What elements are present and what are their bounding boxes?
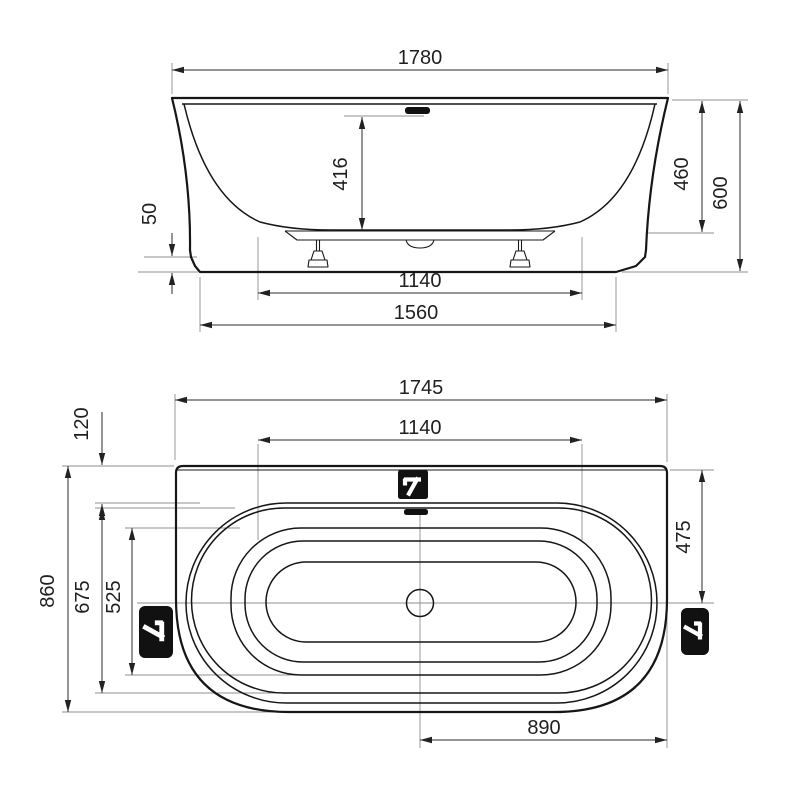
dim-front-basin-depth: 416 <box>330 117 362 230</box>
plan-basin-floor <box>266 562 576 642</box>
dim-front-skirt-width: 1560 <box>200 302 616 325</box>
dim-label: 1140 <box>398 270 441 292</box>
dim-plan-outer-rim-depth: 675 <box>72 508 102 693</box>
bathtub-drawing-svg: 1780 416 460 600 50 1140 1560 <box>0 0 800 800</box>
foot-collar <box>311 251 325 260</box>
front-tub-outline <box>172 98 668 272</box>
dim-label: 416 <box>330 157 352 190</box>
dim-plan-drain-to-edge: 890 <box>420 717 667 740</box>
plan-extension-lines <box>62 394 714 748</box>
dim-plan-basin-width: 525 <box>103 528 132 675</box>
dim-label: 460 <box>671 157 693 190</box>
foot-base <box>308 260 328 267</box>
technical-drawing: 1780 416 460 600 50 1140 1560 <box>0 0 800 800</box>
front-overflow-icon <box>405 107 430 114</box>
dim-label: 890 <box>527 717 560 739</box>
faucet-icon-right <box>681 608 709 655</box>
dim-plan-deck-depth: 120 <box>71 407 102 521</box>
dim-label: 475 <box>673 520 695 553</box>
dim-front-overall-height: 600 <box>710 101 740 271</box>
foot-collar <box>513 251 527 260</box>
dim-label: 525 <box>103 580 125 613</box>
plan-basin-mid <box>245 541 597 662</box>
drain-trap <box>406 240 434 248</box>
dim-front-base-width: 1140 <box>258 270 582 293</box>
front-foot-right <box>510 240 530 267</box>
dim-label: 50 <box>139 203 161 225</box>
dim-label: 675 <box>72 580 94 613</box>
dim-plan-base-length: 1140 <box>258 417 582 440</box>
faucet-icon-top <box>398 470 428 499</box>
dim-label: 1140 <box>398 417 441 439</box>
dim-plan-overall-depth: 860 <box>37 466 68 712</box>
foot-base <box>510 260 530 267</box>
front-foot-left <box>308 240 328 267</box>
dim-front-overall-width: 1780 <box>172 47 668 70</box>
dim-front-rim-to-bottom: 460 <box>671 101 702 232</box>
dim-label: 860 <box>37 574 59 607</box>
frame-bottom-line <box>285 231 555 240</box>
front-support-frame <box>285 231 555 248</box>
dim-plan-overall-length: 1745 <box>175 377 667 400</box>
dim-plan-edge-to-center: 475 <box>673 470 702 603</box>
plan-rim-ring-inner <box>192 508 652 693</box>
dim-label: 600 <box>710 176 732 209</box>
dim-label: 1780 <box>398 47 443 69</box>
foot-rod <box>317 240 320 251</box>
dim-front-leveling-range: 50 <box>139 203 172 294</box>
dim-label: 120 <box>71 407 93 440</box>
front-view: 1780 416 460 600 50 1140 1560 <box>138 47 748 332</box>
dim-label: 1560 <box>394 302 439 324</box>
plan-view: 1745 1140 120 860 675 525 475 89 <box>37 377 714 748</box>
dim-label: 1745 <box>399 377 444 399</box>
overflow-slot-icon <box>404 509 428 515</box>
foot-rod <box>519 240 522 251</box>
plan-basin-outer <box>231 528 611 675</box>
faucet-icon-left <box>139 606 173 658</box>
front-tub-bowl <box>184 104 655 230</box>
